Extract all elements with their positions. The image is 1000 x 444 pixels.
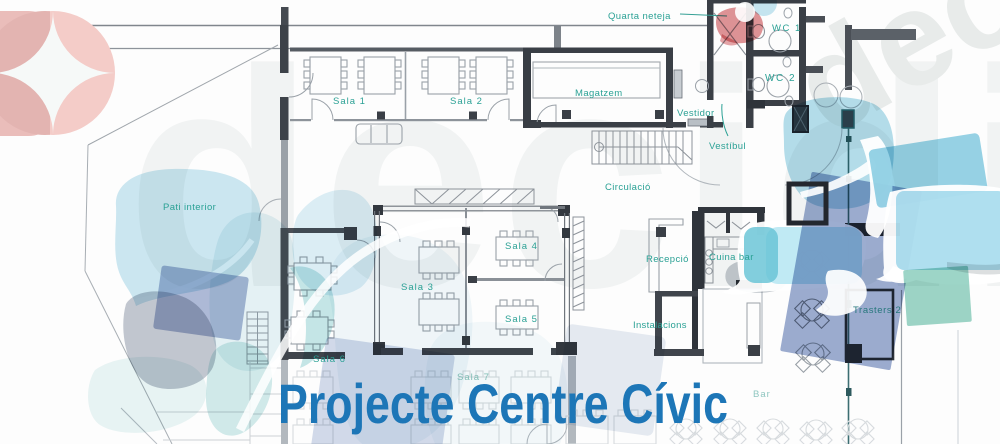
svg-text:Sala 1: Sala 1: [333, 96, 366, 107]
svg-text:WC 1: WC 1: [772, 23, 802, 34]
svg-text:Bar: Bar: [753, 389, 771, 400]
svg-text:Sala 2: Sala 2: [450, 96, 483, 107]
svg-text:Sala 3: Sala 3: [401, 282, 434, 293]
svg-text:Vestíbul: Vestíbul: [709, 141, 746, 152]
svg-text:Circulació: Circulació: [605, 182, 651, 193]
svg-text:Vestidor: Vestidor: [677, 108, 715, 119]
svg-text:Sala 6: Sala 6: [313, 354, 346, 365]
svg-text:Cuina bar: Cuina bar: [709, 252, 754, 263]
svg-text:Pati interior: Pati interior: [163, 202, 216, 213]
svg-text:Sala 4: Sala 4: [505, 241, 538, 252]
svg-text:Quarta neteja: Quarta neteja: [608, 11, 671, 22]
svg-text:Sala 5: Sala 5: [505, 314, 538, 325]
svg-text:Instalacions: Instalacions: [633, 320, 687, 331]
svg-text:WC 2: WC 2: [765, 73, 796, 84]
svg-text:Projecte Centre Cívic: Projecte Centre Cívic: [278, 372, 728, 435]
svg-text:Recepció: Recepció: [646, 254, 689, 265]
svg-text:Trasters 2: Trasters 2: [853, 305, 901, 316]
svg-text:Magatzem: Magatzem: [575, 88, 623, 99]
